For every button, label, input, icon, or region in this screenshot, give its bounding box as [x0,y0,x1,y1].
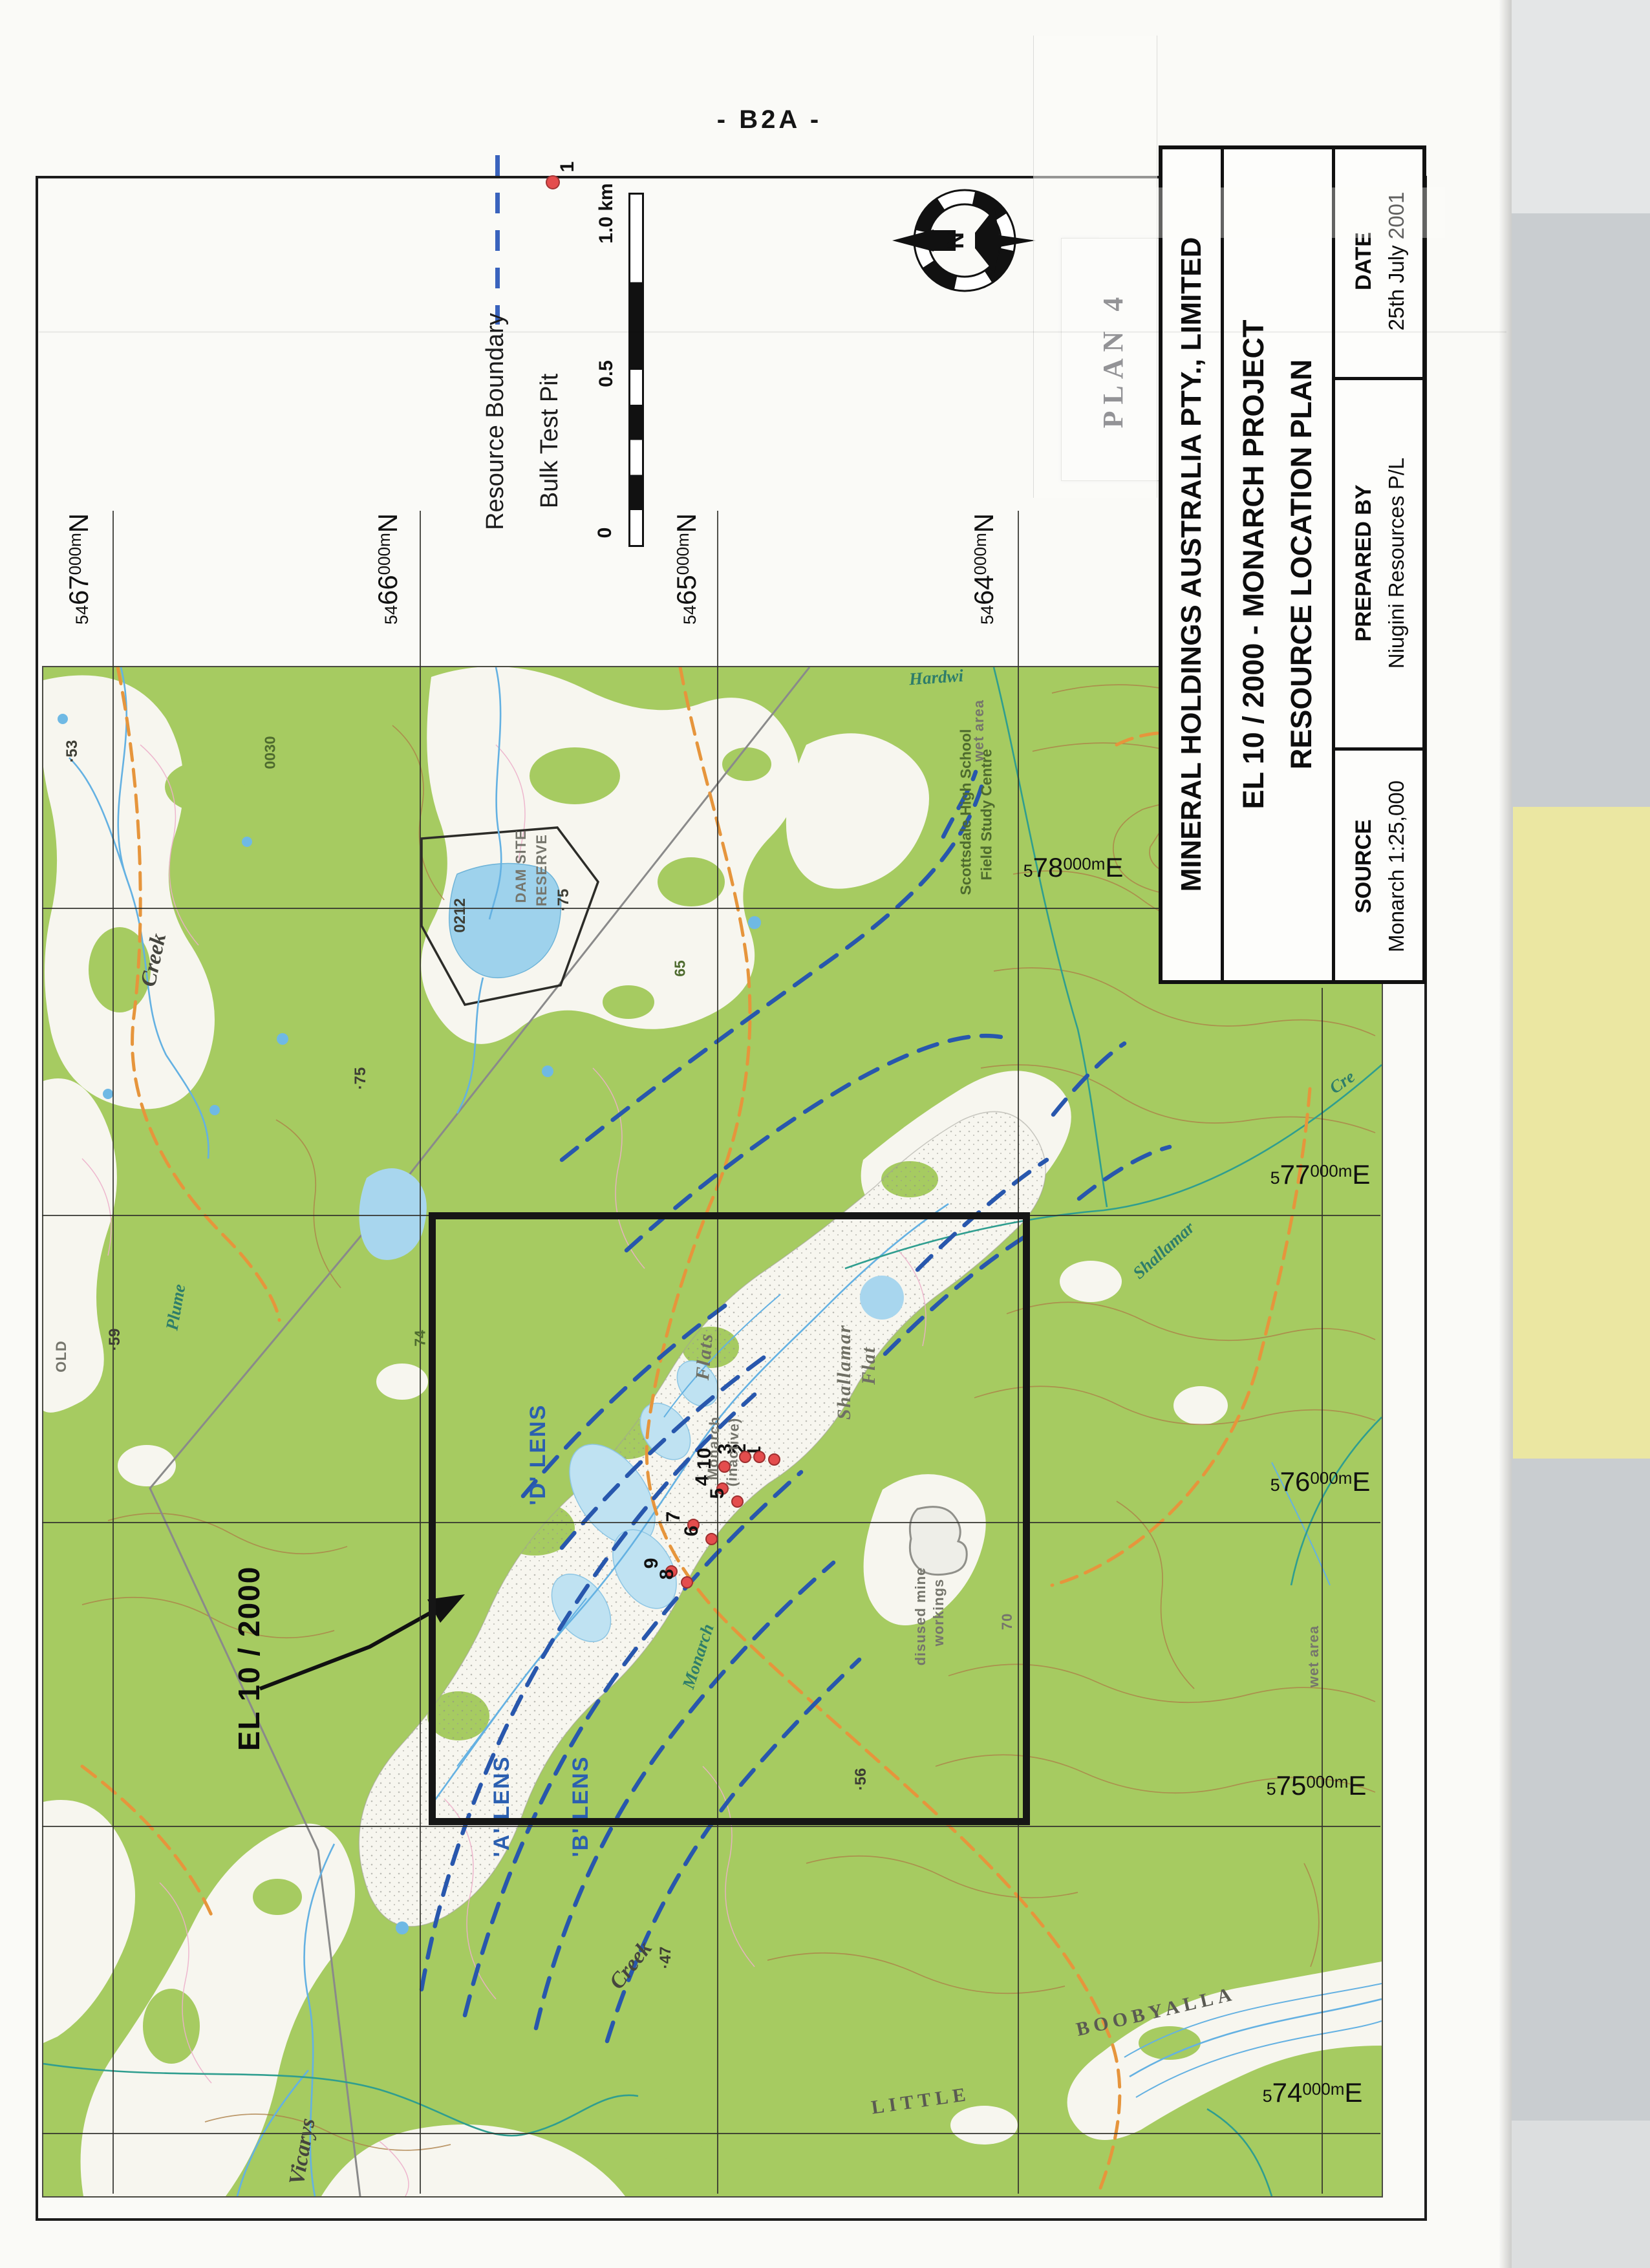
scanner-background-top [1512,0,1650,213]
coordinate-part: 000m [1310,1161,1352,1181]
tape-strip-horizontal [1099,187,1445,238]
map-label-0030: 0030 [263,736,278,769]
coordinate-part: 000m [1310,1468,1352,1488]
map-label--75: ·75 [556,889,572,912]
compass-north-letter: N [942,232,969,249]
scale-label-half: 0.5 [597,360,616,387]
page-header-label: - B2A - [659,107,879,133]
prepared-by-label: PREPARED BY [1351,484,1376,641]
coordinate-part: E [1344,2077,1362,2108]
easting-label-578: 578000mE [1023,852,1124,883]
title-block-divider-h2 [1333,747,1426,751]
coordinate-part: 66 [372,575,403,605]
paper-crease [39,331,1506,333]
coordinate-part: 54 [381,605,401,625]
coordinate-part: 54 [680,605,700,625]
easting-label-577: 577000mE [1270,1159,1371,1190]
source-value: Monarch 1:25,000 [1384,780,1408,952]
el-boundary-rectangle [429,1212,1030,1825]
map-label-65: 65 [673,960,688,977]
northing-label-5466: 5466000mN [372,513,403,625]
coordinate-part: E [1352,1466,1370,1497]
easting-label-574: 574000mE [1263,2077,1363,2108]
map-label-0212: 0212 [453,898,468,932]
grid-line-northing-5466 [420,511,421,2194]
grid-line-northing-5467 [112,511,114,2194]
source-cell: SOURCE Monarch 1:25,000 [1347,780,1413,952]
prepared-by-cell: PREPARED BY Niugini Resources P/L [1347,458,1413,669]
map-label-wet-area: wet area [1307,1625,1321,1687]
coordinate-part: 76 [1280,1466,1311,1497]
coordinate-part: 74 [1272,2077,1303,2108]
coordinate-part: 000m [374,533,394,575]
map-label-field-study-centre: Field Study Centre [980,749,994,880]
prepared-by-value: Niugini Resources P/L [1384,458,1408,669]
resource-boundary-symbol [495,155,500,325]
bulk-test-pit-symbol [546,175,560,189]
coordinate-part: 000m [1063,854,1105,873]
company-name: MINERAL HOLDINGS AUSTRALIA PTY., LIMITED [1176,237,1207,892]
coordinate-part: 000m [970,533,990,575]
coordinate-part: 54 [978,605,997,625]
resource-boundary-label: Resource Boundary [483,313,508,530]
scale-label-one: 1.0 km [597,183,616,243]
coordinate-part: 67 [63,575,94,605]
coordinate-part: 78 [1033,852,1064,883]
map-label-old: OLD [54,1340,69,1372]
map-label-scottsdale-high-school: Scottsdale High School [959,729,974,895]
coordinate-part: 5 [1023,861,1033,881]
page-edge-shadow [1499,0,1512,2268]
coordinate-part: 5 [1267,1779,1276,1799]
coordinate-part: E [1352,1159,1370,1190]
coordinate-part: 000m [673,533,692,575]
northing-label-5467: 5467000mN [63,513,94,625]
coordinate-part: N [671,513,702,533]
tape-strip-vertical [1033,36,1157,498]
title-block-divider-1 [1221,145,1224,984]
coordinate-part: 5 [1270,1475,1280,1495]
coordinate-part: 000m [65,533,85,575]
coordinate-part: 65 [671,575,702,605]
plan-title-line1: EL 10 / 2000 - MONARCH PROJECT [1230,320,1278,809]
map-label-dam-site: DAM SITE [514,829,528,903]
map-label--53: ·53 [65,740,80,763]
coordinate-part: N [969,513,999,533]
scale-bar [628,193,644,547]
map-label--75: ·75 [353,1067,369,1090]
scanned-plan-page: - B2A - [0,0,1650,2268]
northing-label-5465: 5465000mN [671,513,702,625]
coordinate-part: E [1105,852,1123,883]
map-label-reserve: RESERVE [535,834,549,906]
coordinate-part: N [63,513,94,533]
date-label: DATE [1351,232,1376,290]
bulk-test-pit-symbol-number: 1 [558,162,577,173]
plan-title-line2: RESOURCE LOCATION PLAN [1278,320,1325,809]
map-label-hardwi: Hardwi [908,667,964,689]
bulk-test-pit-label: Bulk Test Pit [537,374,562,508]
grid-line-easting-574 [42,2133,1380,2134]
coordinate-part: 75 [1276,1770,1307,1801]
yellow-sheet-edge [1513,807,1650,1459]
map-label-74: 74 [413,1330,428,1347]
coordinate-part: 77 [1280,1159,1311,1190]
plan-title: EL 10 / 2000 - MONARCH PROJECT RESOURCE … [1230,320,1326,809]
grid-line-easting-575 [42,1826,1380,1827]
coordinate-part: 000m [1306,1772,1348,1792]
map-label--47: ·47 [658,1947,674,1969]
easting-label-575: 575000mE [1267,1770,1367,1801]
coordinate-part: E [1348,1770,1366,1801]
coordinate-part: 5 [1263,2086,1272,2106]
north-arrow-compass: N [890,166,1039,315]
scale-label-zero: 0 [595,528,615,539]
title-block-divider-h1 [1333,377,1426,380]
scanner-background-bottom [1512,2121,1650,2268]
coordinate-part: 64 [969,575,999,605]
coordinate-part: N [372,513,403,533]
map-label--59: ·59 [107,1329,123,1351]
northing-label-5464: 5464000mN [969,513,1000,625]
coordinate-part: 000m [1302,2079,1344,2099]
coordinate-part: 54 [72,605,92,625]
el-boundary-label: EL 10 / 2000 [234,1566,264,1751]
source-label: SOURCE [1351,819,1376,913]
title-block-divider-2 [1332,145,1335,984]
coordinate-part: 5 [1270,1168,1280,1188]
easting-label-576: 576000mE [1270,1466,1371,1497]
